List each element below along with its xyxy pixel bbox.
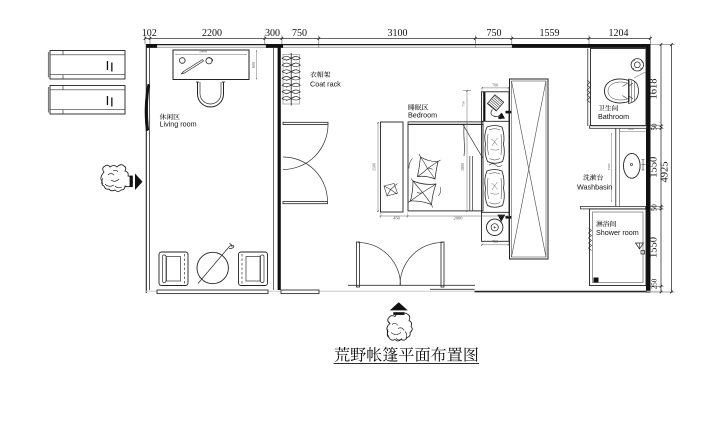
svg-text:1800: 1800 bbox=[460, 163, 465, 171]
svg-text:250: 250 bbox=[651, 278, 659, 289]
svg-text:750: 750 bbox=[292, 28, 307, 39]
svg-text:750: 750 bbox=[462, 101, 466, 107]
svg-text:700: 700 bbox=[492, 239, 498, 244]
svg-text:2200: 2200 bbox=[202, 28, 222, 39]
svg-text:1559: 1559 bbox=[540, 28, 560, 39]
svg-text:450: 450 bbox=[393, 216, 401, 221]
svg-text:Bedroom: Bedroom bbox=[408, 111, 437, 120]
svg-text:300: 300 bbox=[265, 28, 280, 39]
svg-text:1204: 1204 bbox=[609, 28, 629, 39]
svg-text:Washbasin: Washbasin bbox=[577, 182, 612, 191]
svg-text:1500: 1500 bbox=[372, 163, 377, 171]
svg-text:3100: 3100 bbox=[388, 28, 408, 39]
svg-text:50: 50 bbox=[651, 204, 659, 212]
svg-text:750: 750 bbox=[487, 28, 502, 39]
svg-text:700: 700 bbox=[492, 82, 498, 87]
svg-text:1500: 1500 bbox=[607, 163, 611, 170]
svg-text:Bathroom: Bathroom bbox=[598, 112, 629, 121]
svg-text:4925: 4925 bbox=[660, 162, 671, 183]
svg-text:1400: 1400 bbox=[199, 49, 207, 54]
svg-text:50: 50 bbox=[651, 123, 659, 131]
svg-text:2000: 2000 bbox=[454, 216, 464, 221]
svg-text:600: 600 bbox=[251, 62, 256, 68]
svg-text:Living room: Living room bbox=[160, 120, 197, 129]
svg-text:Shower room: Shower room bbox=[596, 228, 639, 237]
svg-text:102: 102 bbox=[142, 28, 157, 39]
svg-text:Coat rack: Coat rack bbox=[310, 80, 341, 89]
svg-text:600: 600 bbox=[628, 127, 634, 131]
